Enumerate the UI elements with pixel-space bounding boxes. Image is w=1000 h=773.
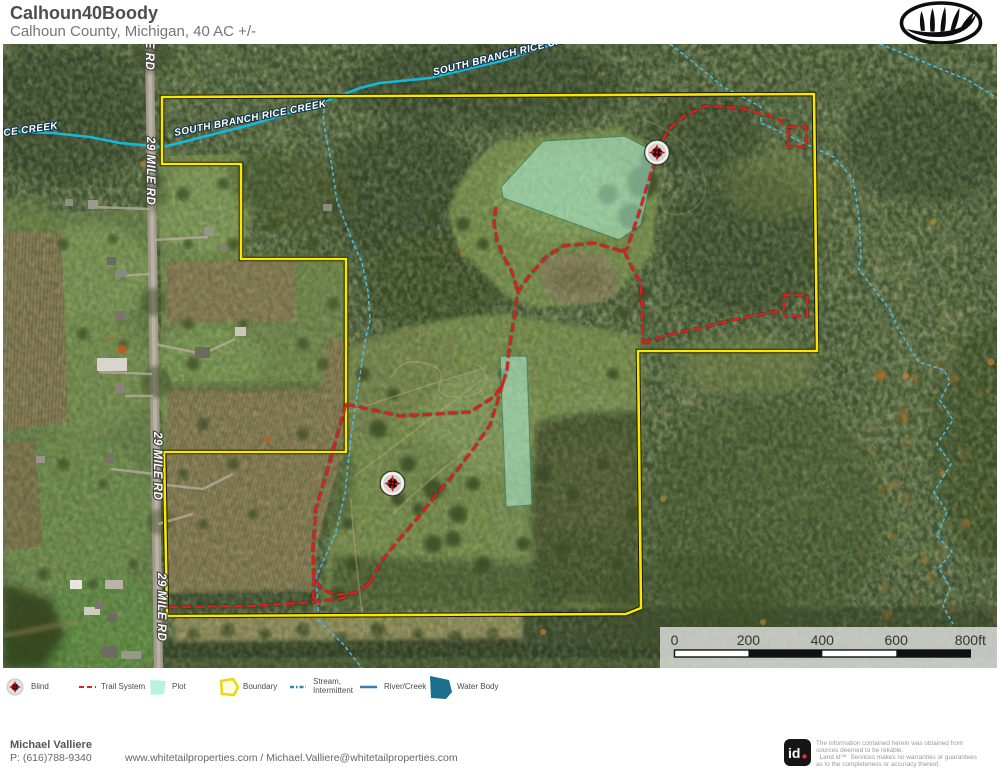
svg-text:0: 0 [671,632,679,648]
svg-text:200: 200 [737,632,761,648]
svg-text:29 MILE RD: 29 MILE RD [155,572,167,641]
svg-text:id: id [788,745,800,761]
svg-text:29 MILE RD: 29 MILE RD [151,431,163,500]
svg-text:800ft: 800ft [955,632,986,648]
svg-text:29 MILE RD: 29 MILE RD [144,136,156,205]
svg-text:29 MILE RD: 29 MILE RD [143,44,155,70]
svg-text:400: 400 [811,632,835,648]
svg-text:600: 600 [885,632,909,648]
